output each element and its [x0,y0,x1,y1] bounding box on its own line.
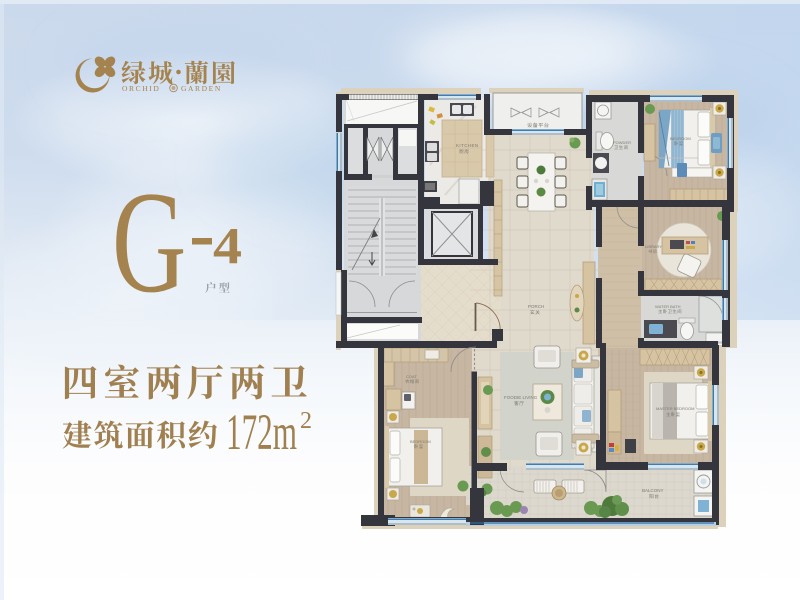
svg-text:BEDROOM: BEDROOM [670,136,691,141]
svg-text:POWDER: POWDER [613,140,631,145]
svg-text:KITCHEN: KITCHEN [456,143,479,148]
svg-text:BALCONY: BALCONY [642,488,664,493]
svg-text:MASTER BEDROOM: MASTER BEDROOM [656,406,694,411]
svg-text:PORCH: PORCH [528,304,544,309]
svg-text:BEDROOM: BEDROOM [410,439,431,444]
svg-text:GARDEN: GARDEN [181,84,222,93]
svg-text:172m: 172m [226,405,297,461]
svg-text:4: 4 [213,218,242,275]
svg-text:COAT: COAT [406,374,417,379]
svg-text:ORCHID: ORCHID [122,84,160,93]
svg-text:WATER BATH: WATER BATH [655,304,681,309]
svg-text:G: G [112,162,186,324]
svg-text:2: 2 [300,408,312,434]
svg-text:FOODIE LIVING: FOODIE LIVING [504,395,538,400]
svg-text:LIBRARY: LIBRARY [645,244,662,249]
